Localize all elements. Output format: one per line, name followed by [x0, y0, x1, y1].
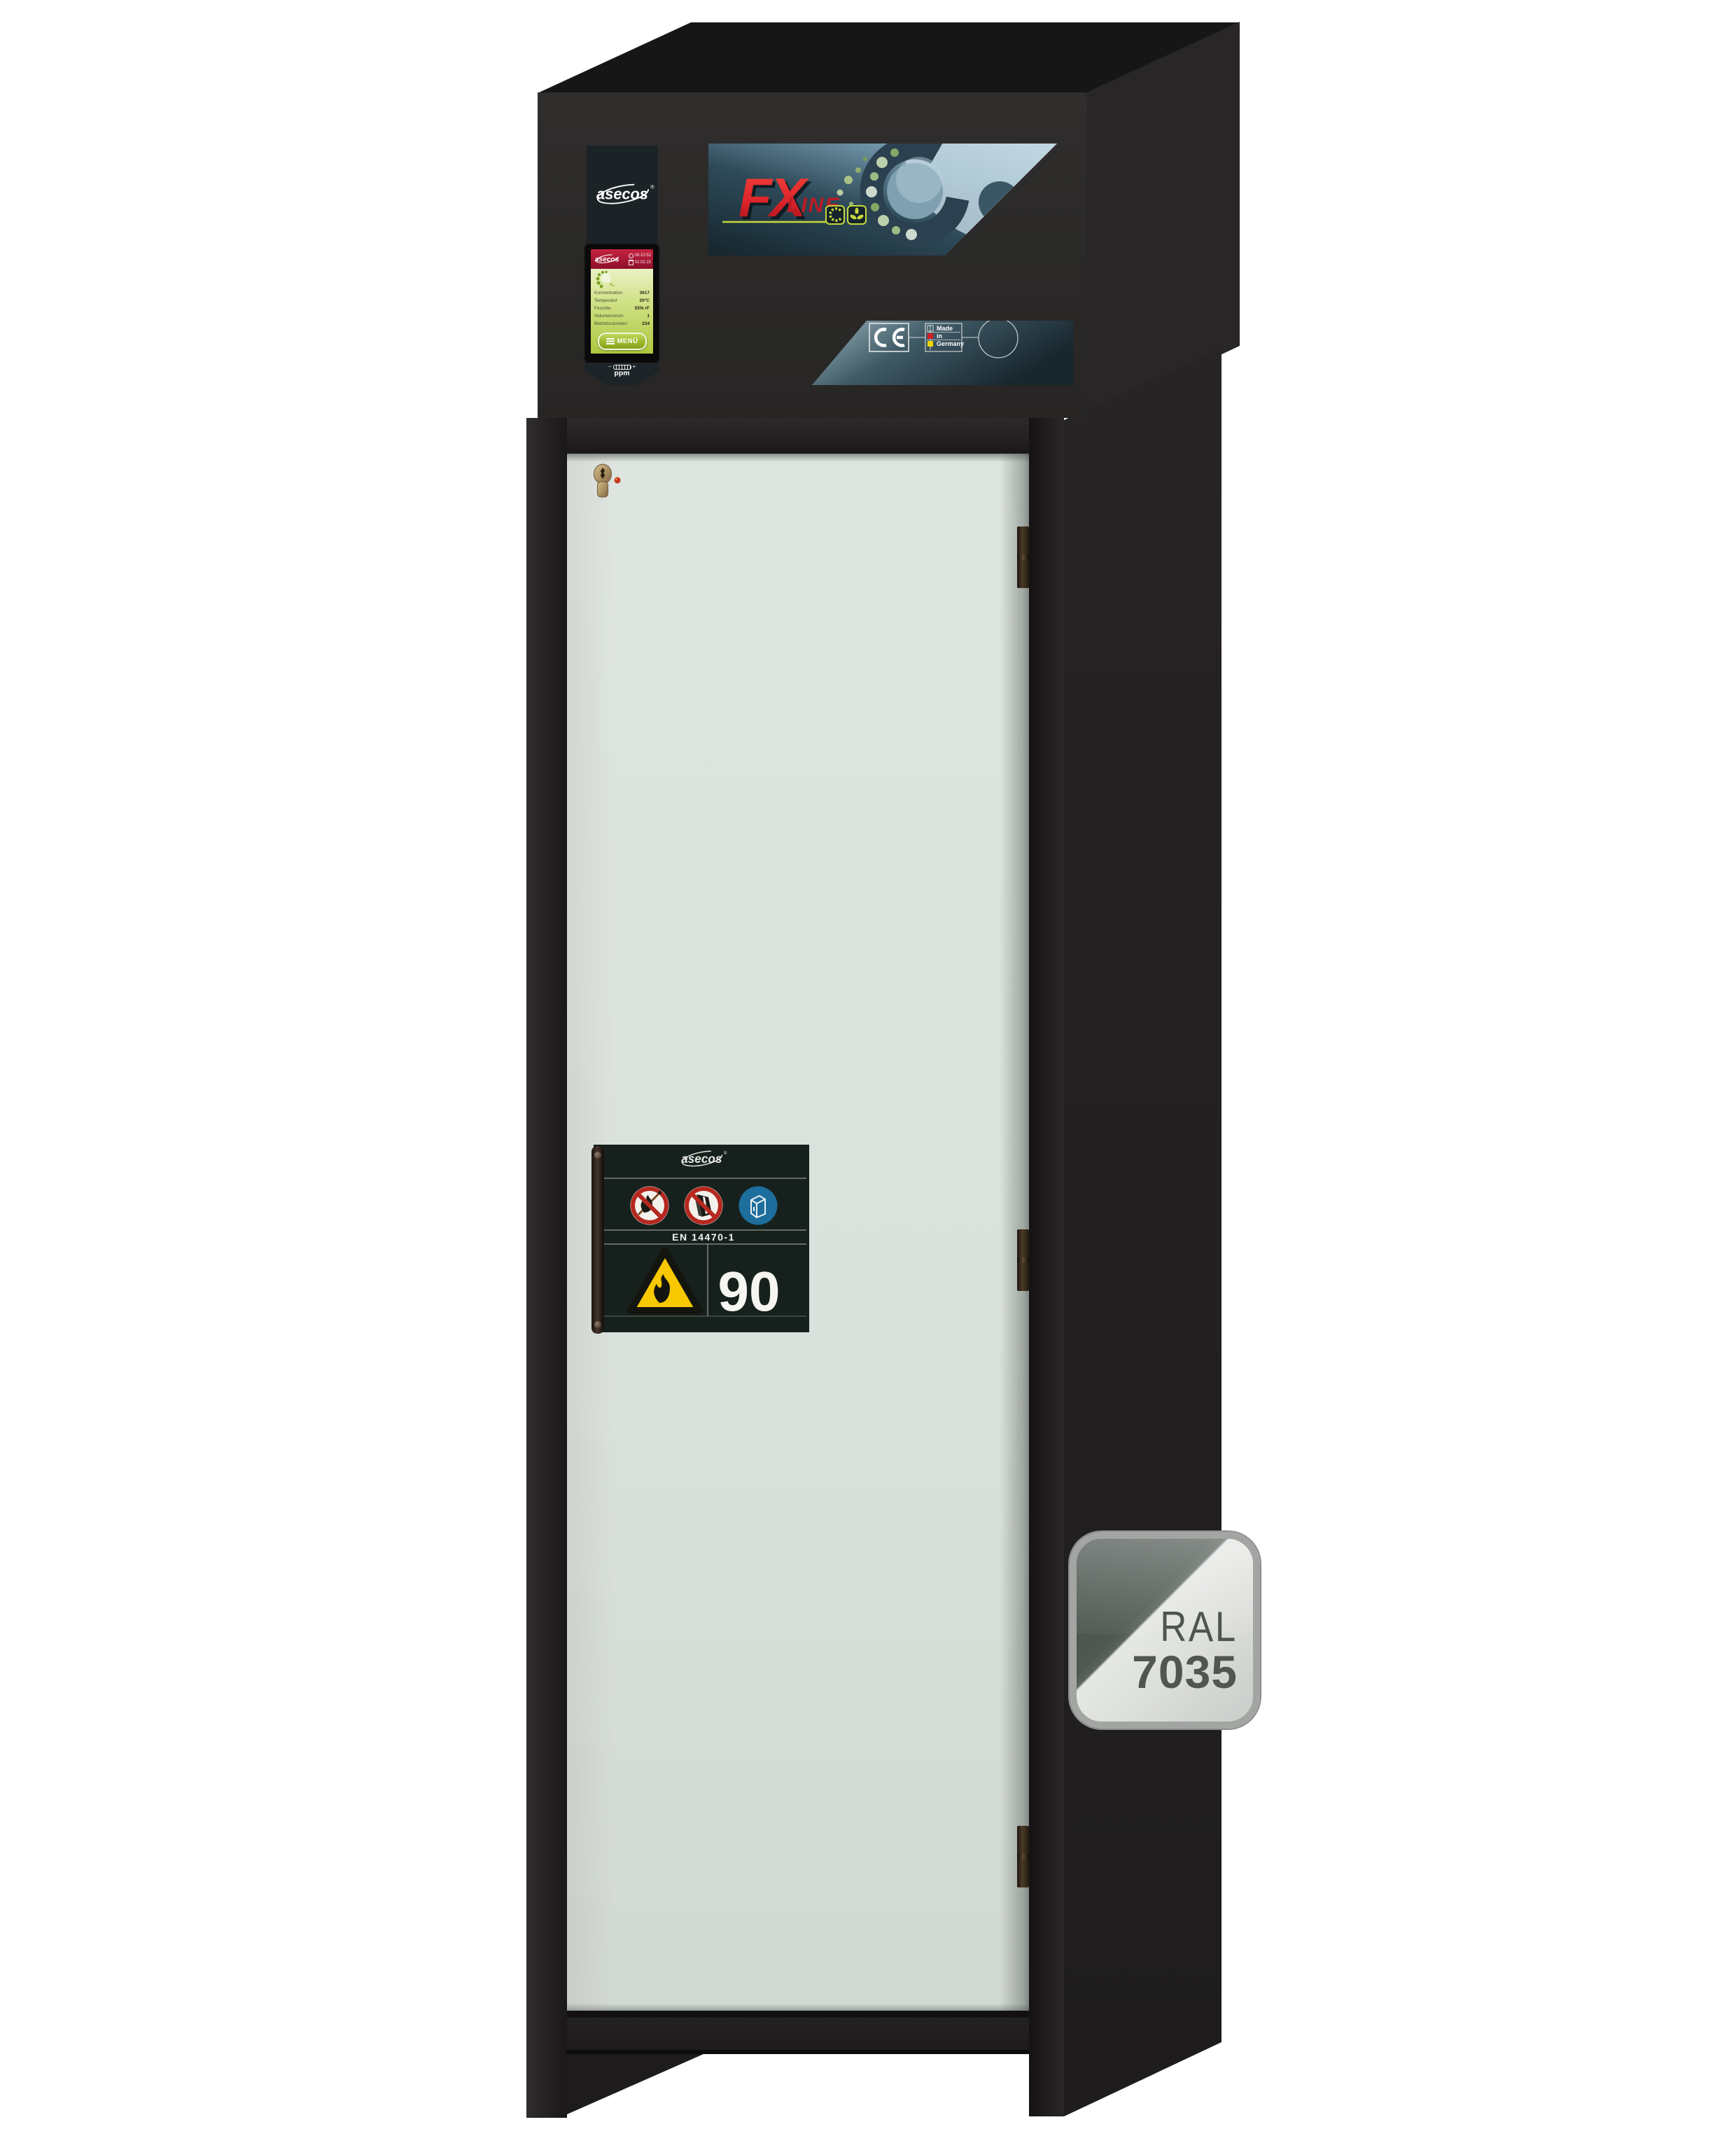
- calendar-icon: [629, 260, 633, 265]
- safety-cabinet-product-image: asecos ® asecos 08:10:52 02.02.15: [0, 0, 1736, 2150]
- registered-mark: ®: [650, 184, 654, 190]
- frame-right-stile: [1029, 418, 1064, 2116]
- display-date: 02.02.15: [635, 260, 651, 265]
- minus-sign: −: [608, 364, 612, 370]
- handle-screw: [594, 1152, 601, 1159]
- handle-screw: [594, 1321, 601, 1328]
- registered-mark: ®: [724, 1151, 727, 1156]
- row-value: 234: [642, 321, 650, 326]
- fx-line-logo-panel: FX FX LINE: [708, 144, 1057, 256]
- measurement-row: Konzentration 3617: [594, 291, 650, 298]
- ral-color-badge: RAL 7035: [1070, 1532, 1260, 1729]
- hinge-knuckle: [1017, 1854, 1029, 1859]
- plinth-inner-face: [567, 2054, 703, 2114]
- germany-text: Germany: [937, 340, 964, 347]
- led-indicator: [615, 477, 621, 484]
- standard-text: EN 14470-1: [672, 1231, 735, 1243]
- display-screen: asecos 08:10:52 02.02.15: [591, 249, 653, 357]
- display-header: asecos 08:10:52 02.02.15: [591, 249, 653, 269]
- display-time: 08:10:52: [635, 253, 651, 258]
- row-value: 55% rF: [635, 306, 650, 311]
- hinge-knuckle: [1017, 554, 1029, 559]
- row-value: 20°C: [639, 298, 650, 303]
- fire-rating-text: 90: [718, 1260, 780, 1322]
- row-label: Volumenstrom: [594, 314, 624, 319]
- keyhole: [594, 464, 612, 497]
- hinge: [1017, 1229, 1029, 1291]
- measurement-row: Volumenstrom 1: [594, 314, 650, 321]
- ral-code: 7035: [1132, 1648, 1238, 1696]
- measurement-row: Temperatur 20°C: [594, 298, 650, 306]
- ral-label: RAL: [1144, 1606, 1238, 1648]
- clock-icon: [629, 253, 633, 258]
- row-value: 1: [647, 314, 650, 319]
- display-body: Konzentration 3617 Temperatur 20°C Feuch…: [591, 269, 653, 354]
- measurement-row: Feuchte 55% rF: [594, 306, 650, 314]
- door-bottom-gap: [567, 2011, 1029, 2018]
- frame-top-rail: [526, 418, 1064, 454]
- measurement-rows: Konzentration 3617 Temperatur 20°C Feuch…: [594, 291, 650, 329]
- row-label: Feuchte: [594, 306, 611, 311]
- row-label: Konzentration: [594, 291, 622, 295]
- prohibition-no-obstructing-icon: [685, 1187, 723, 1225]
- concentration-gauge-icon: [594, 270, 619, 290]
- menu-button: MENÜ: [598, 333, 647, 350]
- door-bottom-shading: [567, 2004, 1029, 2011]
- cabinet-side-wall: [1064, 348, 1221, 2116]
- door-type-label: asecos ®: [594, 1145, 809, 1332]
- menu-label: MENÜ: [617, 337, 638, 345]
- asecos-wordmark: asecos: [596, 186, 648, 203]
- hinge-knuckle: [1017, 1257, 1029, 1262]
- plinth-groove: [567, 2050, 1029, 2054]
- fan-icon: [848, 206, 866, 224]
- asecos-wordmark: asecos: [681, 1152, 722, 1166]
- row-label: Temperatur: [594, 298, 617, 303]
- mandatory-keep-cabinet-closed-icon: [739, 1187, 778, 1225]
- made-text: Made: [937, 325, 953, 332]
- asecos-logo: asecos ®: [590, 181, 654, 208]
- frame-left-stile: [526, 418, 567, 2118]
- asecos-wordmark: asecos: [595, 256, 619, 263]
- brand-panel: asecos ®: [587, 146, 658, 244]
- door-handle: [591, 1146, 604, 1334]
- door-lock: [592, 462, 623, 501]
- hamburger-icon: [606, 338, 615, 344]
- hinge: [1017, 1826, 1029, 1887]
- recirculation-icon: [826, 206, 844, 224]
- prohibition-no-open-flames-icon: [631, 1187, 669, 1225]
- asecos-logo: asecos: [593, 253, 621, 265]
- measurement-row: Betriebsstunden 234: [594, 321, 650, 329]
- ppm-label: ppm: [614, 370, 629, 377]
- control-display: asecos 08:10:52 02.02.15: [585, 244, 659, 363]
- ce-panel: Made in Germany: [808, 316, 1078, 389]
- hinge: [1017, 526, 1029, 588]
- door-top-shadow: [567, 454, 1029, 462]
- plinth-front: [567, 2018, 1029, 2050]
- row-value: 3617: [640, 291, 650, 295]
- in-text: in: [937, 333, 942, 340]
- row-label: Betriebsstunden: [594, 321, 627, 326]
- plus-sign: +: [633, 364, 636, 370]
